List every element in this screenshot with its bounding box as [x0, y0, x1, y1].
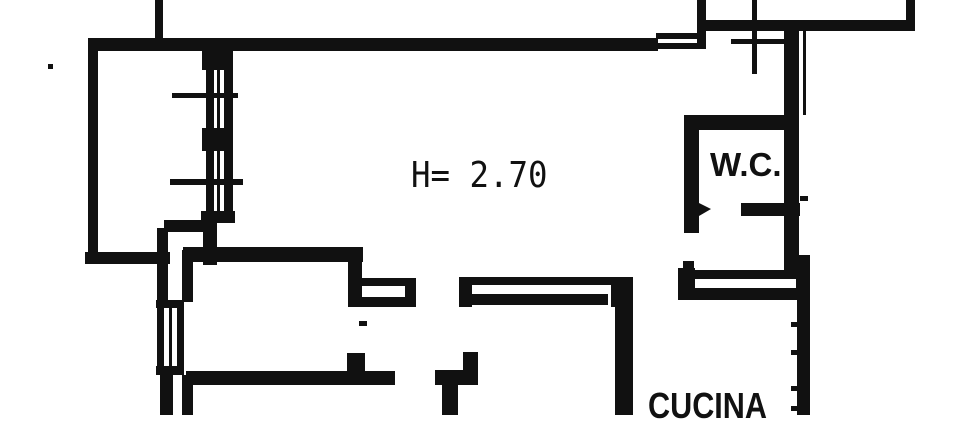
wall-segment [463, 352, 478, 371]
scan-dot [48, 64, 53, 69]
floor-plan-drawing [0, 0, 960, 415]
wall-segment [160, 375, 173, 415]
survey-cross-icon [731, 0, 784, 74]
window-icon [172, 70, 238, 128]
window-glazing-line [217, 70, 220, 128]
window-jamb [206, 70, 214, 128]
cross-bar [731, 39, 784, 44]
wall-segment [183, 247, 363, 262]
wall-segment [202, 50, 233, 70]
window-sill [156, 300, 184, 308]
wall-segment [202, 128, 233, 151]
wall-tick [804, 260, 810, 265]
wall-segment [347, 353, 365, 372]
kitchen-room-label: CUCINA [648, 389, 767, 422]
wall-segment [797, 300, 810, 415]
window-axis-tick [172, 93, 238, 98]
wall-segment [186, 371, 395, 385]
wall-segment [784, 23, 799, 277]
wall-segment [615, 277, 633, 415]
wc-room-label: W.C. [710, 148, 782, 181]
wall-segment [684, 115, 798, 130]
wall-segment [906, 0, 915, 31]
wall-tick [791, 406, 798, 411]
window-jamb [177, 308, 184, 366]
wall-segment [88, 38, 658, 51]
wall-segment [157, 228, 168, 302]
window-jamb [157, 308, 164, 366]
window-sill [656, 43, 705, 49]
wall-tick [791, 386, 798, 391]
wall-segment [684, 115, 699, 233]
window-glazing-line [169, 308, 172, 366]
window-axis-tick [170, 179, 243, 185]
cut-line [155, 0, 163, 44]
door-jamb [405, 278, 416, 307]
interior-walls [48, 64, 478, 415]
door-sill [472, 294, 608, 305]
doorway-icon [459, 277, 633, 307]
door-head [359, 278, 409, 286]
scan-dot [359, 321, 367, 326]
wall-edge-line [803, 31, 806, 115]
cross-bar [752, 0, 757, 74]
wall-segment [164, 220, 209, 232]
floor-plan: H= 2.70 W.C. CUCINA [0, 0, 960, 415]
wall-segment [88, 42, 98, 263]
door-head [472, 277, 630, 285]
window-jamb [224, 70, 233, 128]
wall-segment [435, 370, 478, 385]
door-jamb [459, 277, 472, 307]
wall-tick [791, 350, 798, 355]
wall-segment [693, 270, 797, 279]
window-sill [156, 366, 184, 375]
wall-segment [442, 385, 458, 415]
door-swing-arrow-icon [699, 203, 711, 216]
wall-segment [678, 288, 807, 300]
wall-tick [791, 322, 798, 327]
ceiling-height-label: H= 2.70 [411, 158, 548, 194]
right-exterior-wall [784, 23, 810, 415]
wall-segment [703, 20, 915, 31]
window-sill [656, 33, 705, 39]
window-icon [170, 151, 243, 211]
wall-tick [800, 196, 808, 201]
wall-segment [741, 203, 800, 216]
window-icon [156, 300, 184, 375]
